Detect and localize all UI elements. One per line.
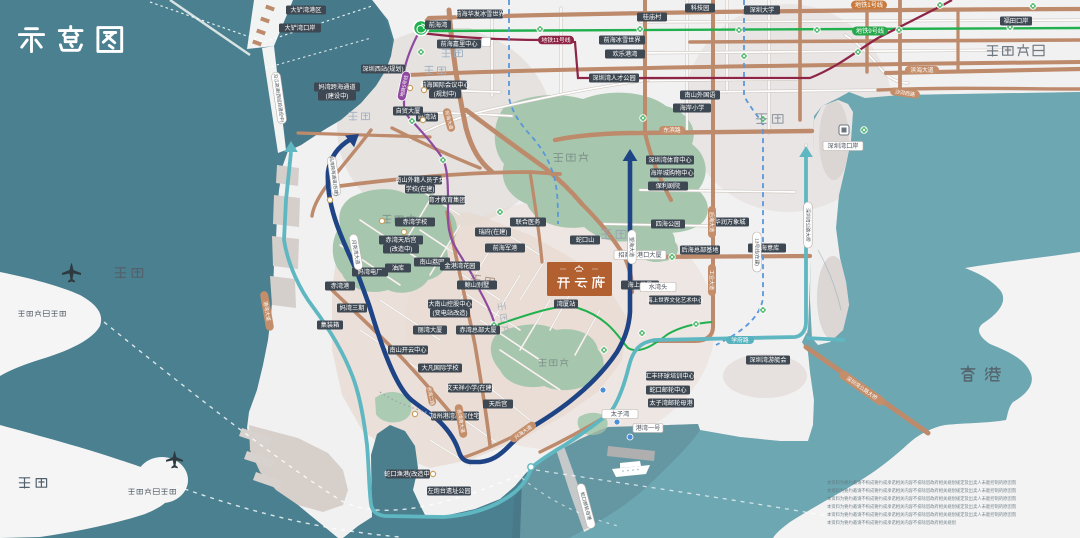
svg-text:蛇口渔港(改造中): 蛇口渔港(改造中) — [384, 470, 431, 478]
svg-text:地铁1号线: 地铁1号线 — [855, 1, 883, 9]
svg-text:蛇口邮轮中心: 蛇口邮轮中心 — [649, 386, 686, 394]
svg-text:大铲湾口岸: 大铲湾口岸 — [285, 24, 316, 32]
svg-text:本资料为要约邀请不构成要约或承诺相关内容不排除因政府相关规划: 本资料为要约邀请不构成要约或承诺相关内容不排除因政府相关规划 — [827, 519, 956, 526]
svg-text:前海华发冰雪世界: 前海华发冰雪世界 — [455, 10, 505, 18]
svg-text:南山外国语: 南山外国语 — [685, 91, 716, 99]
svg-text:欢乐港湾: 欢乐港湾 — [613, 50, 638, 58]
svg-text:集装箱: 集装箱 — [321, 321, 340, 329]
svg-text:四海公园: 四海公园 — [656, 220, 681, 228]
svg-text:蛇口山: 蛇口山 — [576, 236, 595, 244]
svg-text:本资料为要约邀请不构成要约或承诺相关内容不排除因政府相关规划: 本资料为要约邀请不构成要约或承诺相关内容不排除因政府相关规划规定及出卖人未能控制… — [827, 511, 1017, 518]
svg-text:深圳湾游艇会: 深圳湾游艇会 — [749, 356, 786, 364]
svg-text:前海军港: 前海军港 — [493, 244, 519, 252]
svg-text:港湾一号: 港湾一号 — [636, 424, 661, 432]
svg-text:深圳湾口岸: 深圳湾口岸 — [828, 142, 859, 150]
svg-text:本资料为要约邀请不构成要约或承诺相关内容不排除因政府相关规划: 本资料为要约邀请不构成要约或承诺相关内容不排除因政府相关规划规定及出卖人未能控制… — [827, 495, 1017, 502]
svg-text:前海冰雪世界: 前海冰雪世界 — [603, 36, 640, 44]
svg-text:学校(在建): 学校(在建) — [406, 185, 435, 193]
svg-text:东滨路: 东滨路 — [663, 126, 681, 134]
svg-text:本资料为要约邀请不构成要约或承诺相关内容不排除因政府相关规划: 本资料为要约邀请不构成要约或承诺相关内容不排除因政府相关规划规定及出卖人未能控制… — [827, 479, 1017, 486]
svg-text:后海总部基地: 后海总部基地 — [681, 246, 718, 254]
svg-text:学府路: 学府路 — [731, 336, 749, 344]
svg-text:左炮台遗址公园: 左炮台遗址公园 — [427, 487, 470, 495]
svg-text:滨海大道: 滨海大道 — [910, 66, 933, 74]
svg-text:湾厦站: 湾厦站 — [557, 300, 576, 308]
svg-text:海岸城购物中心: 海岸城购物中心 — [650, 169, 693, 177]
svg-text:金港湾花园: 金港湾花园 — [445, 262, 476, 270]
svg-text:瑞府(在建): 瑞府(在建) — [479, 228, 508, 236]
svg-text:保利剧院: 保利剧院 — [656, 182, 681, 190]
svg-text:自贸大厦: 自贸大厦 — [396, 107, 421, 115]
svg-text:海岸小学: 海岸小学 — [680, 104, 705, 112]
svg-text:(变电站改造): (变电站改造) — [432, 309, 467, 317]
svg-text:深圳西站(规划): 深圳西站(规划) — [362, 65, 403, 73]
svg-text:水湾头: 水湾头 — [649, 283, 668, 291]
svg-text:联合医务: 联合医务 — [516, 218, 541, 226]
svg-text:育才教育集团: 育才教育集团 — [428, 196, 465, 204]
svg-text:13号线(在建): 13号线(在建) — [753, 238, 760, 266]
svg-text:天后宫: 天后宫 — [489, 400, 508, 408]
svg-text:本资料为要约邀请不构成要约或承诺相关内容不排除因政府相关规划: 本资料为要约邀请不构成要约或承诺相关内容不排除因政府相关规划规定及出卖人未能控制… — [827, 503, 1017, 510]
svg-text:地铁11号线: 地铁11号线 — [541, 36, 570, 44]
svg-text:加州港湾高层住宅: 加州港湾高层住宅 — [430, 412, 480, 420]
svg-text:深圳湾人才公园: 深圳湾人才公园 — [592, 74, 635, 82]
svg-text:前海嘉里中心: 前海嘉里中心 — [440, 40, 477, 48]
svg-text:赤湾学校: 赤湾学校 — [403, 218, 428, 226]
svg-text:望海大道: 望海大道 — [628, 237, 635, 257]
svg-text:(规划中): (规划中) — [434, 90, 457, 98]
svg-text:赤湾总部大厦: 赤湾总部大厦 — [459, 326, 496, 334]
svg-text:南山开云中心: 南山开云中心 — [389, 346, 426, 354]
svg-text:前海国际会议中心: 前海国际会议中心 — [420, 81, 470, 89]
svg-text:大凡国际学校: 大凡国际学校 — [421, 364, 458, 372]
svg-text:深圳大学: 深圳大学 — [750, 6, 775, 14]
svg-text:桂庙村: 桂庙村 — [643, 13, 662, 21]
svg-text:鲸山别墅: 鲸山别墅 — [465, 281, 490, 289]
svg-text:太子湾: 太子湾 — [611, 410, 630, 418]
svg-text:太子湾邮轮母港: 太子湾邮轮母港 — [649, 399, 693, 407]
svg-text:油库: 油库 — [392, 264, 404, 272]
svg-text:后海大道: 后海大道 — [708, 212, 715, 232]
svg-text:本资料为要约邀请不构成要约或承诺相关内容不排除因政府相关规划: 本资料为要约邀请不构成要约或承诺相关内容不排除因政府相关规划规定及出卖人未能控制… — [827, 487, 1017, 494]
svg-text:妈湾电厂: 妈湾电厂 — [358, 268, 383, 276]
svg-text:地铁9号线: 地铁9号线 — [856, 27, 884, 35]
svg-text:招商局港口大厦: 招商局港口大厦 — [618, 251, 661, 259]
svg-text:福田口岸: 福田口岸 — [1004, 17, 1029, 25]
svg-text:工业大道: 工业大道 — [708, 270, 715, 290]
svg-text:汇丰环球培训中心: 汇丰环球培训中心 — [645, 372, 695, 380]
svg-text:(建设中): (建设中) — [326, 92, 349, 100]
svg-text:华润万象城: 华润万象城 — [715, 218, 746, 226]
svg-text:大南山控股中心: 大南山控股中心 — [428, 300, 471, 308]
svg-text:妈湾跨海通道: 妈湾跨海通道 — [318, 83, 355, 91]
svg-text:赤湾港: 赤湾港 — [331, 282, 350, 290]
svg-text:前海湾: 前海湾 — [429, 21, 448, 29]
svg-text:科技园: 科技园 — [691, 4, 710, 12]
svg-text:丽湾大厦: 丽湾大厦 — [418, 326, 443, 334]
svg-text:深圳湾公路大桥: 深圳湾公路大桥 — [804, 208, 811, 242]
svg-text:大铲湾港区: 大铲湾港区 — [291, 6, 322, 14]
svg-text:文天祥小学(在建): 文天祥小学(在建) — [446, 384, 493, 392]
svg-text:深圳湾体育中心: 深圳湾体育中心 — [648, 156, 691, 164]
svg-text:妈湾三期: 妈湾三期 — [340, 304, 365, 312]
svg-text:(改造中): (改造中) — [390, 245, 413, 253]
svg-text:南山外籍人员子女: 南山外籍人员子女 — [395, 176, 445, 184]
svg-text:赤湾天后宫: 赤湾天后宫 — [386, 236, 417, 244]
svg-text:海上世界文化艺术中心: 海上世界文化艺术中心 — [647, 296, 703, 304]
